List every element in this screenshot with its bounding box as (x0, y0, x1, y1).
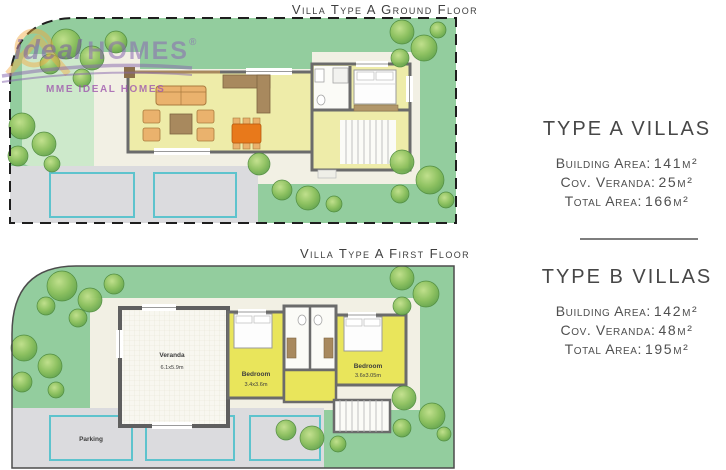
bedroom-2: Bedroom 3.6x3.05m (336, 312, 406, 385)
stairs (334, 400, 390, 432)
ground-floor-plan (4, 14, 464, 230)
building-area-row: Building Area:141m² (528, 154, 726, 173)
building-area-row: Building Area:142m² (528, 302, 726, 321)
type-a-title: TYPE A VILLAS (528, 118, 726, 141)
veranda-dims: 6.1x5.9m (160, 365, 183, 371)
bedroom2-label: Bedroom (354, 363, 383, 370)
veranda-label: Veranda (159, 352, 185, 359)
bedroom2-dims: 3.6x3.05m (355, 373, 381, 379)
column (124, 67, 135, 78)
type-a-panel: TYPE A VILLAS Building Area:141m² Cov. V… (528, 118, 726, 211)
dining-table (232, 124, 261, 143)
first-floor-plan: Parking Veranda 6.1x5.9m Bedroom 3.4x3.6… (4, 260, 464, 470)
panel-divider (580, 238, 698, 240)
bedroom-1: Bedroom 3.4x3.6m (228, 309, 284, 398)
driveway (10, 166, 258, 223)
bedroom1-dims: 3.4x3.6m (244, 382, 267, 388)
hallway (284, 370, 336, 402)
total-area-row: Total Area:166m² (528, 192, 726, 211)
veranda-room: Veranda 6.1x5.9m (116, 304, 228, 429)
coffee-table (170, 114, 192, 134)
cov-veranda-row: Cov. Veranda:48m² (528, 321, 726, 340)
dining-set (232, 118, 261, 149)
entry-step (318, 170, 336, 178)
bathrooms (284, 306, 336, 370)
parking-label: Parking (79, 436, 103, 443)
bedroom1-label: Bedroom (242, 371, 271, 378)
total-area-row: Total Area:195m² (528, 340, 726, 359)
lawn-top-overlay (140, 52, 312, 69)
type-b-panel: TYPE B VILLAS Building Area:142m² Cov. V… (528, 266, 726, 359)
wardrobe (354, 105, 398, 111)
brochure-page: { "watermark": { "brand_script": "ideal"… (0, 0, 726, 470)
bed (354, 70, 396, 104)
cov-veranda-row: Cov. Veranda:25m² (528, 173, 726, 192)
type-b-title: TYPE B VILLAS (528, 266, 726, 289)
first-floor-title: Villa Type A First Floor (230, 246, 540, 261)
